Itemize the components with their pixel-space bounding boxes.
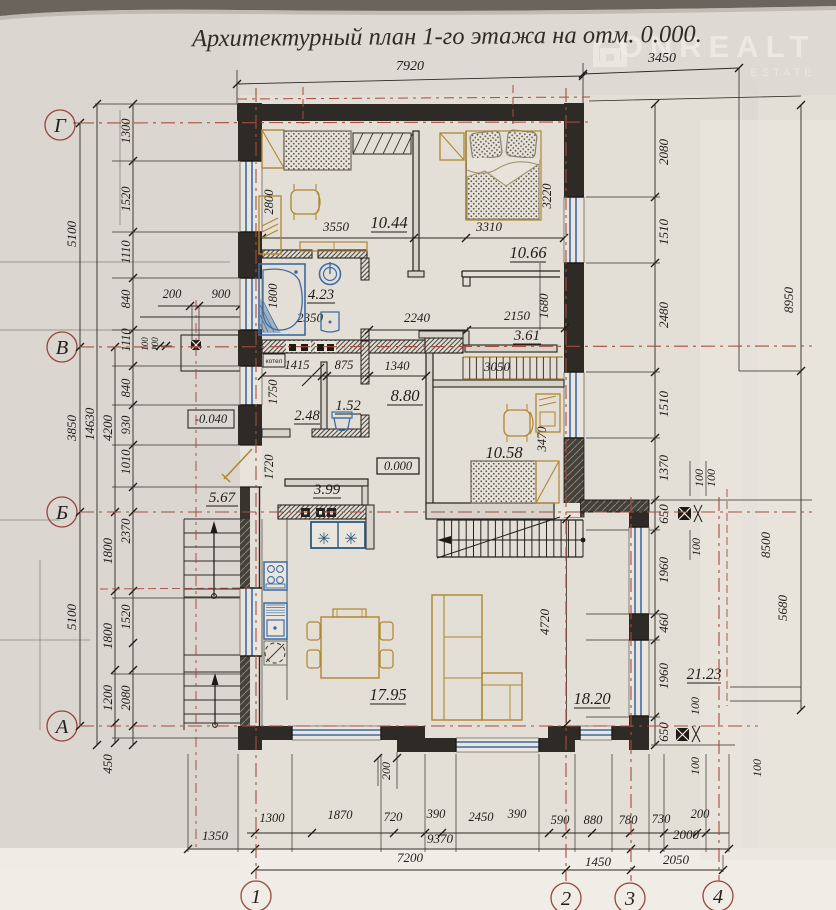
svg-text:1510: 1510: [656, 219, 671, 246]
svg-text:7920: 7920: [396, 59, 424, 74]
svg-text:ESTATE: ESTATE: [750, 67, 815, 79]
svg-text:1800: 1800: [100, 623, 115, 650]
svg-text:1370: 1370: [656, 455, 671, 482]
svg-text:3050: 3050: [483, 359, 511, 374]
svg-text:650: 650: [656, 722, 671, 742]
svg-text:3450: 3450: [647, 51, 676, 66]
svg-text:4: 4: [713, 886, 723, 908]
svg-text:1415: 1415: [285, 358, 310, 372]
svg-text:1800: 1800: [266, 283, 280, 309]
svg-text:Г: Г: [53, 115, 67, 137]
svg-text:1960: 1960: [656, 663, 671, 690]
svg-text:3.99: 3.99: [313, 482, 341, 498]
svg-text:А: А: [54, 716, 69, 738]
svg-text:3220: 3220: [540, 183, 554, 210]
svg-text:1300: 1300: [260, 811, 286, 825]
svg-text:21.23: 21.23: [687, 666, 722, 683]
svg-text:1010: 1010: [119, 449, 133, 475]
svg-text:✳: ✳: [317, 531, 330, 548]
svg-text:2080: 2080: [656, 139, 671, 166]
svg-text:1300: 1300: [119, 118, 133, 144]
svg-text:5100: 5100: [64, 604, 79, 631]
svg-text:590: 590: [551, 813, 571, 827]
svg-text:1800: 1800: [100, 538, 115, 565]
svg-text:3470: 3470: [535, 426, 549, 453]
svg-text:5680: 5680: [775, 595, 790, 622]
svg-text:0.000: 0.000: [384, 459, 413, 473]
svg-text:Архитектурный план 1-го этажа: Архитектурный план 1-го этажа на отм. 0.…: [190, 21, 702, 52]
svg-text:8950: 8950: [781, 287, 796, 314]
svg-text:100: 100: [688, 697, 702, 715]
svg-text:17.95: 17.95: [369, 685, 406, 704]
svg-text:2240: 2240: [404, 310, 431, 325]
svg-text:10.44: 10.44: [370, 213, 407, 232]
svg-text:840: 840: [119, 289, 133, 309]
svg-text:4200: 4200: [100, 415, 115, 442]
svg-text:4.23: 4.23: [308, 287, 334, 303]
svg-text:1510: 1510: [656, 391, 671, 418]
svg-text:Б: Б: [55, 502, 68, 524]
svg-text:-0.040: -0.040: [195, 412, 228, 426]
svg-text:1680: 1680: [537, 293, 551, 319]
svg-text:5.67: 5.67: [209, 490, 237, 506]
svg-text:1110: 1110: [119, 328, 133, 352]
svg-text:1520: 1520: [119, 604, 133, 630]
svg-text:3850: 3850: [64, 415, 79, 443]
svg-text:880: 880: [584, 813, 604, 827]
svg-text:2150: 2150: [504, 308, 531, 323]
svg-text:В: В: [56, 337, 69, 359]
svg-text:2.48: 2.48: [294, 408, 320, 424]
svg-text:14630: 14630: [82, 407, 97, 440]
svg-text:1110: 1110: [119, 240, 133, 264]
svg-text:100: 100: [150, 337, 160, 351]
svg-text:3310: 3310: [475, 219, 503, 234]
svg-text:460: 460: [656, 613, 671, 633]
svg-text:1720: 1720: [262, 454, 276, 480]
svg-text:450: 450: [100, 754, 115, 774]
svg-text:100: 100: [750, 759, 764, 777]
svg-text:100: 100: [140, 337, 150, 351]
svg-text:18.20: 18.20: [573, 689, 611, 708]
svg-text:8.80: 8.80: [391, 386, 421, 405]
svg-text:390: 390: [507, 807, 528, 821]
svg-text:2050: 2050: [663, 852, 690, 867]
svg-text:2800: 2800: [262, 189, 276, 215]
svg-text:10.66: 10.66: [509, 243, 547, 262]
svg-text:2000: 2000: [673, 827, 700, 842]
svg-text:1450: 1450: [585, 854, 612, 869]
svg-text:2450: 2450: [469, 810, 495, 824]
svg-text:875: 875: [335, 358, 354, 372]
svg-text:4720: 4720: [537, 609, 552, 636]
svg-text:1960: 1960: [656, 557, 671, 584]
svg-text:3550: 3550: [322, 219, 350, 234]
svg-text:1870: 1870: [328, 808, 354, 822]
svg-text:200: 200: [379, 762, 393, 780]
svg-text:2080: 2080: [119, 685, 133, 711]
svg-text:100: 100: [689, 538, 703, 556]
svg-text:780: 780: [619, 813, 639, 827]
svg-text:1200: 1200: [100, 685, 115, 712]
svg-text:1340: 1340: [385, 359, 411, 373]
svg-text:1750: 1750: [266, 379, 280, 405]
svg-text:1: 1: [251, 886, 261, 908]
svg-text:720: 720: [384, 810, 404, 824]
svg-text:10.58: 10.58: [485, 443, 523, 462]
svg-text:✳: ✳: [344, 531, 357, 548]
svg-text:390: 390: [426, 807, 447, 821]
svg-text:650: 650: [656, 504, 671, 524]
svg-text:3.61: 3.61: [513, 328, 540, 344]
svg-text:7200: 7200: [397, 850, 424, 865]
svg-text:1350: 1350: [202, 828, 229, 843]
svg-text:8500: 8500: [758, 532, 773, 559]
svg-text:котел: котел: [266, 358, 283, 365]
svg-text:9370: 9370: [427, 831, 454, 846]
svg-text:200: 200: [691, 807, 711, 821]
svg-text:5100: 5100: [64, 221, 79, 248]
svg-text:2: 2: [561, 888, 571, 910]
svg-text:100: 100: [688, 757, 702, 775]
svg-text:900: 900: [212, 287, 232, 301]
svg-text:1520: 1520: [119, 186, 133, 212]
svg-text:930: 930: [119, 415, 133, 435]
svg-text:840: 840: [119, 378, 133, 398]
svg-text:2370: 2370: [119, 518, 133, 544]
svg-text:200: 200: [163, 287, 183, 301]
svg-text:2480: 2480: [656, 302, 671, 329]
svg-text:3: 3: [624, 888, 635, 910]
svg-text:730: 730: [652, 812, 672, 826]
